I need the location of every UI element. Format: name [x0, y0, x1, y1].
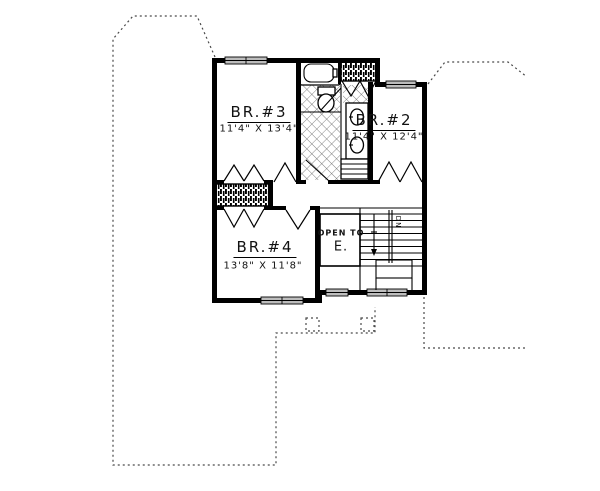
br2-entry-door: [400, 162, 422, 182]
stairs-dn-label: DN: [394, 216, 402, 229]
br3-room-label: BR.#3: [227, 103, 290, 123]
br4-room-dims: 13'8" X 11'8": [223, 261, 302, 272]
open-to-below-label-line1: OPEN TO: [318, 229, 365, 238]
br4-window: [261, 297, 303, 304]
br4-closet-door: [224, 209, 244, 227]
open-to-below-label-line2: E.: [334, 240, 348, 255]
br2-entry-door: [378, 162, 400, 182]
br3-closet-door: [224, 165, 244, 181]
stair-treads: [360, 214, 422, 266]
br3-closet-door: [244, 165, 264, 181]
stair-landing-window: [367, 289, 407, 296]
br2-closet-hatch: [341, 61, 376, 81]
bathtub: [300, 61, 340, 85]
br3-entry-door: [274, 163, 296, 182]
porch-post-outline: [361, 318, 374, 331]
floor-plan-canvas: BR.#3 11'4" X 13'4" BR.#2 11'4" X 12'4" …: [0, 0, 600, 491]
toilet: [318, 87, 335, 112]
br2-room-dims: 11'4" X 12'4": [344, 132, 423, 143]
br2-room-label: BR.#2: [352, 111, 415, 131]
stair-landing: [376, 260, 412, 290]
br3-br4-closet-hatch: [216, 184, 270, 206]
floor-plan-drawing: [0, 0, 600, 491]
br3-window: [225, 57, 267, 64]
hall-window: [326, 289, 348, 296]
br4-room-label: BR.#4: [233, 238, 296, 258]
stair-rail: [389, 210, 392, 263]
br4-closet-door: [244, 209, 264, 227]
porch-post-outline: [306, 318, 319, 331]
linen-closet: [341, 159, 368, 179]
br2-window: [386, 81, 416, 88]
br3-room-dims: 11'4" X 13'4": [219, 124, 298, 135]
br4-entry-door: [286, 210, 310, 229]
